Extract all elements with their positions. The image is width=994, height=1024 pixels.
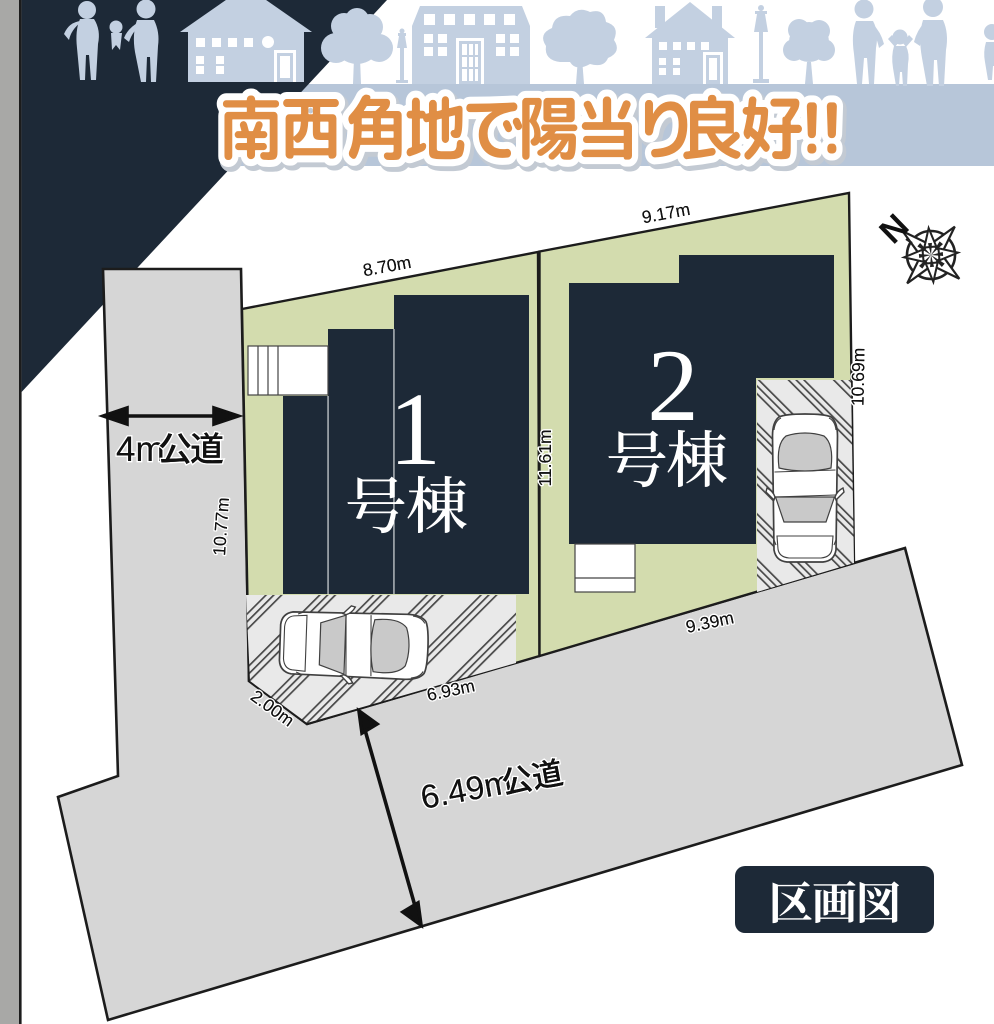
svg-text:1: 1	[389, 372, 441, 487]
svg-text:2: 2	[647, 329, 699, 443]
svg-text:10.77m: 10.77m	[209, 497, 233, 557]
svg-text:11.61m: 11.61m	[535, 429, 555, 486]
svg-text:10.69m: 10.69m	[847, 348, 868, 407]
svg-text:4m: 4m	[116, 430, 165, 469]
